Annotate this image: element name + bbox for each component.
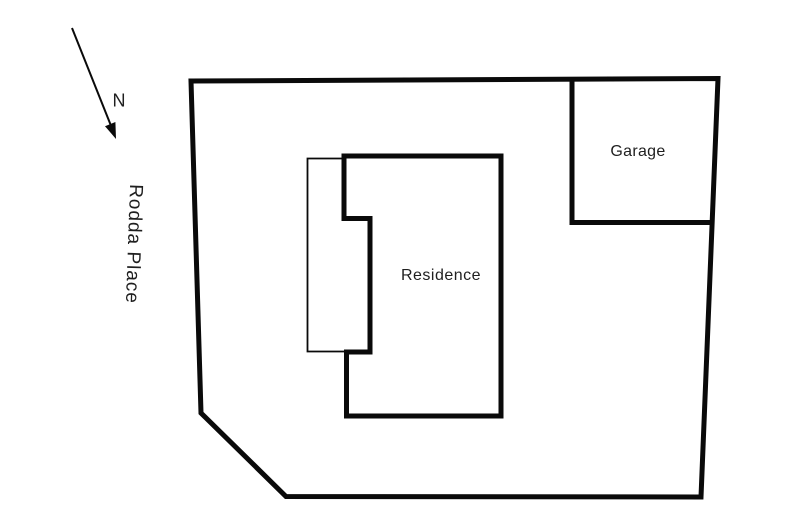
property-boundary-outline [191, 79, 718, 498]
north-arrow-head [105, 122, 116, 139]
residence-outline [344, 156, 501, 416]
street-name-label: Rodda Place [120, 184, 146, 304]
north-label: N [113, 91, 126, 112]
porch-outline [308, 159, 347, 352]
residence-label: Residence [401, 267, 481, 285]
site-plan-drawing [0, 0, 790, 527]
north-arrow-shaft [72, 28, 111, 125]
garage-label: Garage [610, 143, 665, 161]
north-arrow-icon [72, 28, 116, 139]
site-plan-canvas: N Rodda Place Residence Garage [0, 0, 790, 527]
